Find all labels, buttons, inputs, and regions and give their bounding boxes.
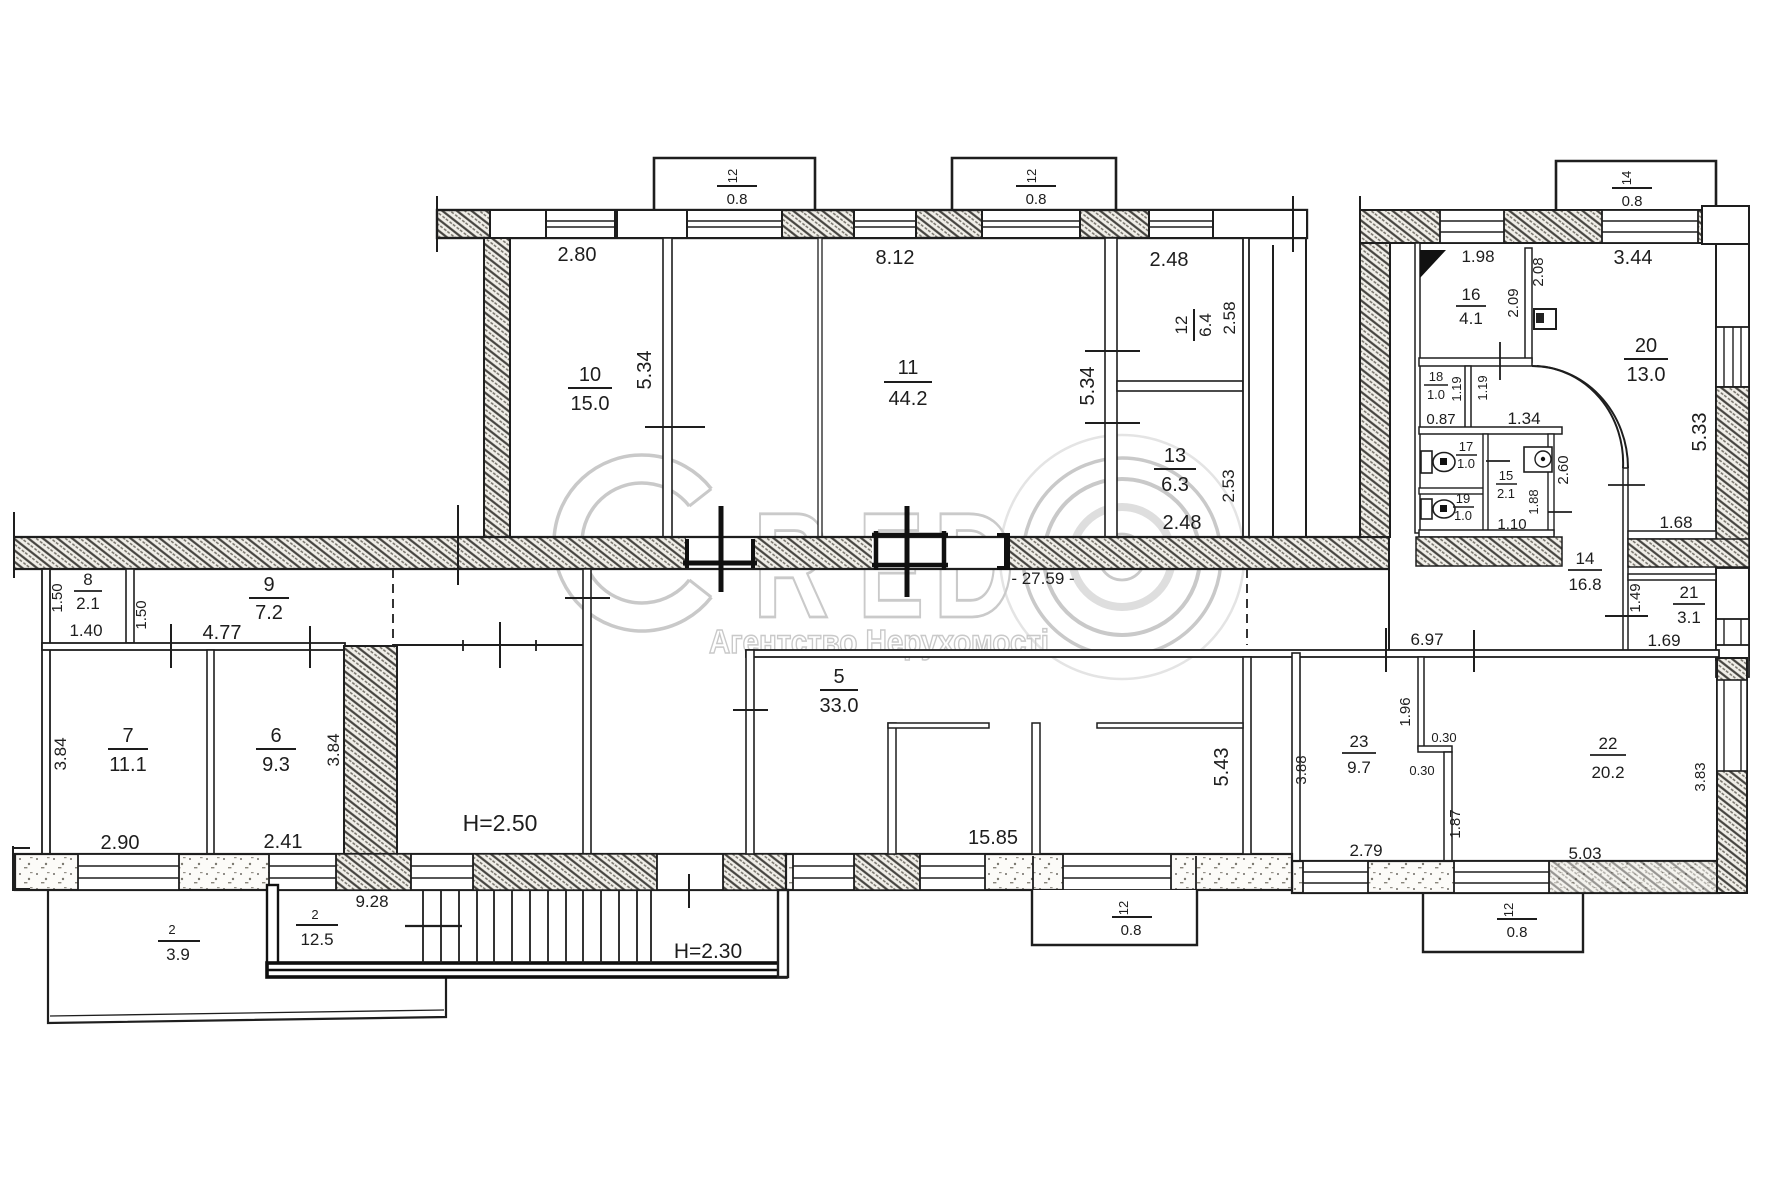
svg-text:0.8: 0.8	[1026, 191, 1047, 208]
svg-text:16.8: 16.8	[1568, 575, 1601, 594]
svg-text:2.80: 2.80	[558, 244, 597, 266]
svg-text:1.34: 1.34	[1507, 409, 1540, 428]
svg-text:7: 7	[122, 725, 133, 747]
svg-text:5.03: 5.03	[1568, 844, 1601, 863]
svg-text:4.77: 4.77	[203, 622, 242, 644]
svg-text:3.9: 3.9	[166, 945, 190, 964]
svg-text:20.2: 20.2	[1591, 763, 1624, 782]
svg-text:14: 14	[1576, 549, 1595, 568]
svg-text:3.83: 3.83	[1692, 762, 1709, 791]
svg-text:1.40: 1.40	[69, 621, 102, 640]
svg-text:7.2: 7.2	[255, 602, 283, 624]
svg-text:1.0: 1.0	[1427, 387, 1445, 402]
svg-text:5.34: 5.34	[634, 351, 656, 390]
svg-text:1.49: 1.49	[1627, 583, 1644, 612]
svg-text:2: 2	[311, 907, 318, 922]
svg-text:19: 19	[1456, 491, 1470, 506]
svg-text:17: 17	[1459, 439, 1473, 454]
svg-text:2.09: 2.09	[1505, 288, 1522, 317]
svg-text:2.90: 2.90	[101, 832, 140, 854]
svg-text:1.19: 1.19	[1449, 376, 1464, 401]
svg-text:2.1: 2.1	[1497, 486, 1515, 501]
svg-text:6: 6	[270, 725, 281, 747]
svg-text:4.1: 4.1	[1459, 309, 1483, 328]
svg-text:11: 11	[898, 357, 919, 379]
svg-text:1.68: 1.68	[1659, 513, 1692, 532]
svg-text:0.8: 0.8	[1507, 924, 1528, 941]
svg-text:2.53: 2.53	[1219, 469, 1238, 502]
svg-text:5.33: 5.33	[1689, 413, 1711, 452]
svg-text:2.58: 2.58	[1220, 301, 1239, 334]
svg-text:1.87: 1.87	[1447, 809, 1464, 838]
svg-text:33.0: 33.0	[820, 695, 859, 717]
svg-text:2.48: 2.48	[1150, 249, 1189, 271]
svg-text:1.88: 1.88	[1526, 489, 1541, 514]
svg-text:11.1: 11.1	[109, 754, 146, 776]
svg-text:2.08: 2.08	[1530, 257, 1547, 286]
svg-text:1.0: 1.0	[1457, 456, 1475, 471]
svg-text:20: 20	[1635, 335, 1657, 357]
svg-text:9: 9	[263, 574, 274, 596]
svg-text:6.97: 6.97	[1410, 630, 1443, 649]
svg-text:5.43: 5.43	[1211, 748, 1233, 787]
svg-text:8: 8	[83, 570, 92, 589]
svg-text:2.1: 2.1	[76, 594, 100, 613]
svg-text:1.98: 1.98	[1461, 247, 1494, 266]
svg-text:9.28: 9.28	[355, 892, 388, 911]
svg-text:0.30: 0.30	[1431, 730, 1456, 745]
svg-text:1.50: 1.50	[133, 600, 150, 629]
svg-text:18: 18	[1429, 369, 1443, 384]
svg-text:3.44: 3.44	[1614, 247, 1653, 269]
svg-text:3.84: 3.84	[324, 733, 343, 766]
svg-text:21: 21	[1680, 583, 1699, 602]
svg-text:0.87: 0.87	[1426, 411, 1455, 428]
svg-text:12: 12	[1172, 316, 1191, 335]
svg-text:0.8: 0.8	[727, 191, 748, 208]
svg-text:2: 2	[168, 922, 175, 937]
svg-text:1.69: 1.69	[1647, 631, 1680, 650]
svg-text:3.88: 3.88	[1293, 755, 1310, 784]
svg-text:12.5: 12.5	[300, 930, 333, 949]
svg-text:6.3: 6.3	[1161, 474, 1189, 496]
svg-text:6.4: 6.4	[1196, 313, 1215, 337]
svg-text:15.85: 15.85	[968, 827, 1018, 849]
svg-text:3.84: 3.84	[51, 737, 70, 770]
svg-text:1.50: 1.50	[49, 583, 66, 612]
svg-text:10: 10	[579, 364, 601, 386]
svg-text:0.30: 0.30	[1409, 763, 1434, 778]
svg-text:12: 12	[725, 169, 740, 183]
svg-text:0.8: 0.8	[1622, 193, 1643, 210]
svg-text:44.2: 44.2	[889, 388, 928, 410]
svg-text:12: 12	[1501, 903, 1516, 917]
svg-text:15: 15	[1499, 468, 1513, 483]
svg-text:8.12: 8.12	[876, 247, 915, 269]
svg-text:9.3: 9.3	[262, 754, 290, 776]
svg-text:2.41: 2.41	[264, 831, 303, 853]
svg-text:1.19: 1.19	[1475, 375, 1490, 400]
svg-text:14: 14	[1619, 171, 1634, 185]
svg-text:H=2.50: H=2.50	[463, 810, 538, 836]
svg-text:9.7: 9.7	[1347, 758, 1371, 777]
svg-text:2.48: 2.48	[1163, 512, 1202, 534]
svg-text:3.1: 3.1	[1677, 608, 1701, 627]
svg-text:- 27.59 -: - 27.59 -	[1011, 569, 1074, 588]
svg-text:16: 16	[1462, 285, 1481, 304]
svg-text:2.60: 2.60	[1555, 455, 1572, 484]
svg-text:1.10: 1.10	[1497, 516, 1526, 533]
svg-text:0.8: 0.8	[1121, 922, 1142, 939]
svg-text:13: 13	[1164, 445, 1186, 467]
svg-text:1.0: 1.0	[1454, 508, 1472, 523]
svg-text:12: 12	[1024, 169, 1039, 183]
svg-text:15.0: 15.0	[571, 393, 610, 415]
svg-text:1.96: 1.96	[1397, 697, 1414, 726]
svg-text:22: 22	[1599, 734, 1618, 753]
svg-text:13.0: 13.0	[1627, 364, 1666, 386]
svg-text:23: 23	[1350, 732, 1369, 751]
svg-text:5.34: 5.34	[1077, 367, 1099, 406]
svg-text:H=2.30: H=2.30	[674, 940, 742, 963]
svg-text:5: 5	[833, 666, 844, 688]
svg-text:12: 12	[1116, 901, 1131, 915]
svg-text:2.79: 2.79	[1349, 841, 1382, 860]
